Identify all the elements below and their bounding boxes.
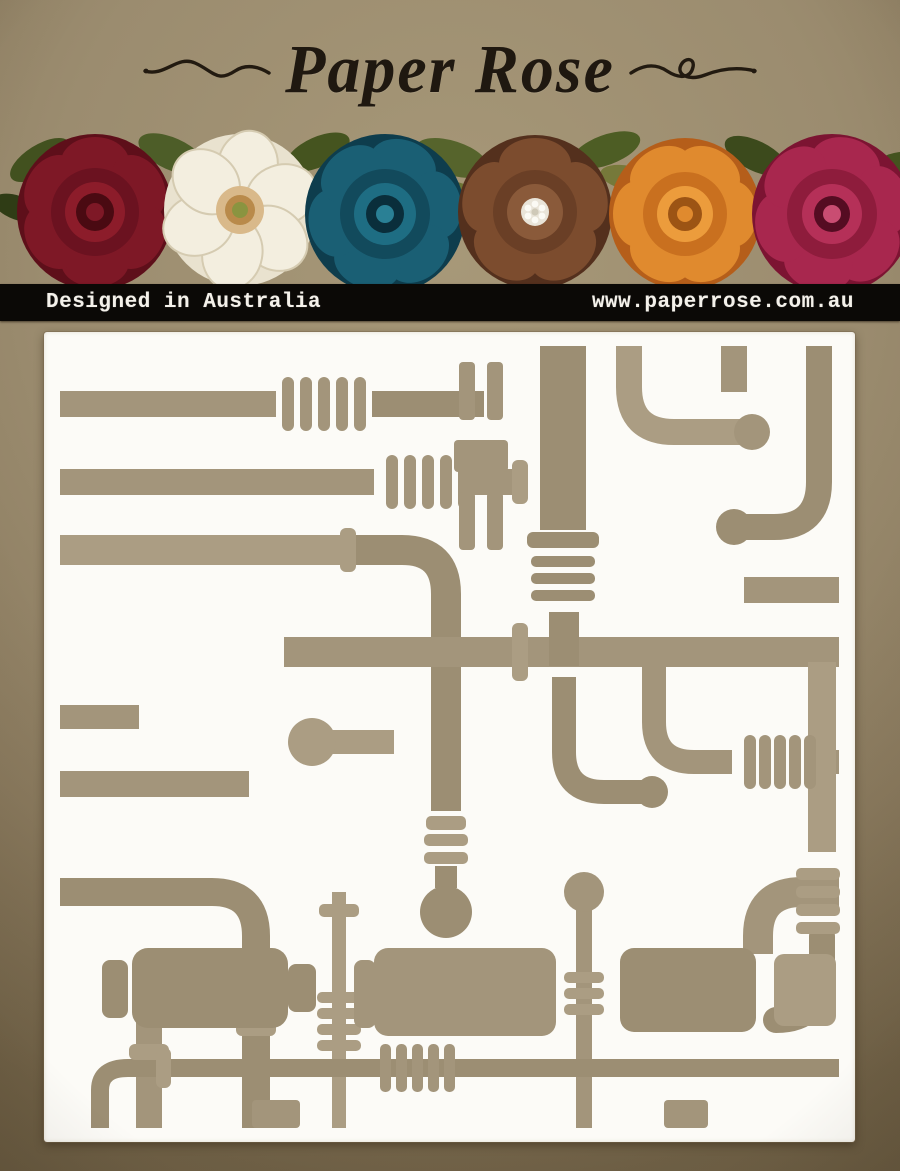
brand-title: Paper Rose	[285, 36, 615, 105]
title-flourish-left-icon	[143, 47, 271, 93]
product-photo-page: { "brand": { "title": "Paper Rose" }, "i…	[0, 0, 900, 1171]
info-bar: Designed in Australia www.paperrose.com.…	[0, 284, 900, 321]
header: Paper Rose	[0, 18, 900, 122]
flower-banner	[0, 112, 900, 284]
rhinestone-gem-icon	[521, 198, 549, 226]
stencil-panel	[44, 332, 855, 1142]
info-bar-right-text: www.paperrose.com.au	[592, 291, 854, 314]
pipe-flanged-column	[527, 346, 599, 666]
title-flourish-right-icon	[629, 47, 757, 93]
pipe-fittings	[102, 948, 836, 1036]
info-bar-left-text: Designed in Australia	[46, 291, 321, 314]
pipes-stencil-art	[44, 332, 855, 1142]
